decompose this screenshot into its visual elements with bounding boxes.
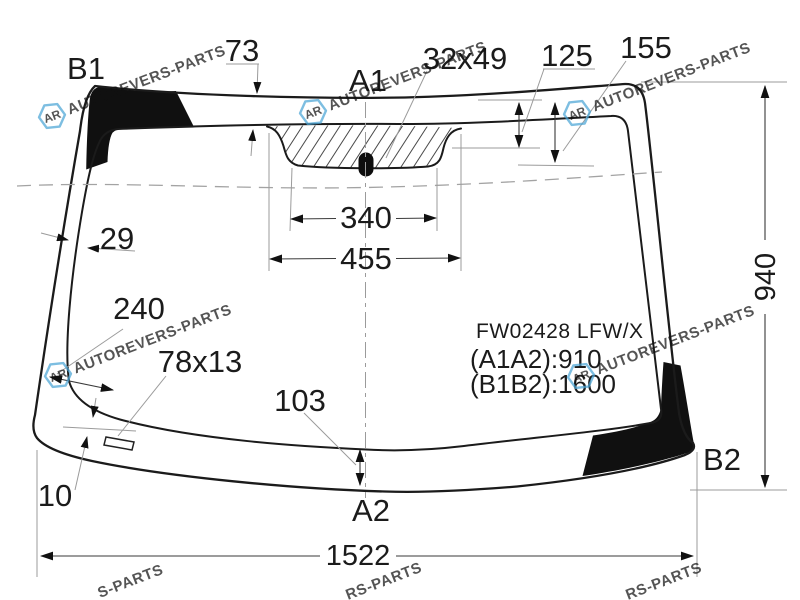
windshield-diagram: B1 A1 B2 A2 73 32x49 125 155 29 240 78x1… xyxy=(0,0,800,600)
watermark-brand-text: S-PARTS xyxy=(95,561,165,600)
dim-label-78x13: 78x13 xyxy=(158,344,242,379)
dim-label-340: 340 xyxy=(340,200,392,235)
windshield-drawing-page: B1 A1 B2 A2 73 32x49 125 155 29 240 78x1… xyxy=(0,0,800,600)
label-a2: A2 xyxy=(352,493,390,528)
dim-label-455: 455 xyxy=(340,241,392,276)
part-code: FW02428 LFW/X xyxy=(476,320,644,343)
watermark-partial-bottom-left: S-PARTS xyxy=(95,561,165,600)
label-b1: B1 xyxy=(67,51,105,86)
dim-73 xyxy=(226,64,259,156)
watermark-partial-bottom-right: RS-PARTS xyxy=(623,559,704,600)
bracket-78x13 xyxy=(63,376,166,490)
ceramic-band-dashed-line xyxy=(17,172,662,188)
watermark-top-center: AR AUTOREVERS-PARTS xyxy=(297,34,491,128)
label-b2: B2 xyxy=(703,442,741,477)
dim-label-103: 103 xyxy=(274,383,326,418)
dim-label-940: 940 xyxy=(750,253,782,301)
dim-label-1522: 1522 xyxy=(326,540,391,572)
dim-label-73: 73 xyxy=(225,33,259,68)
bracket-outline xyxy=(104,437,134,450)
mirror-mount-pad xyxy=(234,112,487,177)
dim-label-125: 125 xyxy=(541,38,593,73)
dim-label-29: 29 xyxy=(100,221,134,256)
dim-label-240: 240 xyxy=(113,291,165,326)
dim-label-155: 155 xyxy=(620,30,672,65)
dim-label-10: 10 xyxy=(38,478,72,513)
watermark-brand-text: RS-PARTS xyxy=(623,559,704,600)
